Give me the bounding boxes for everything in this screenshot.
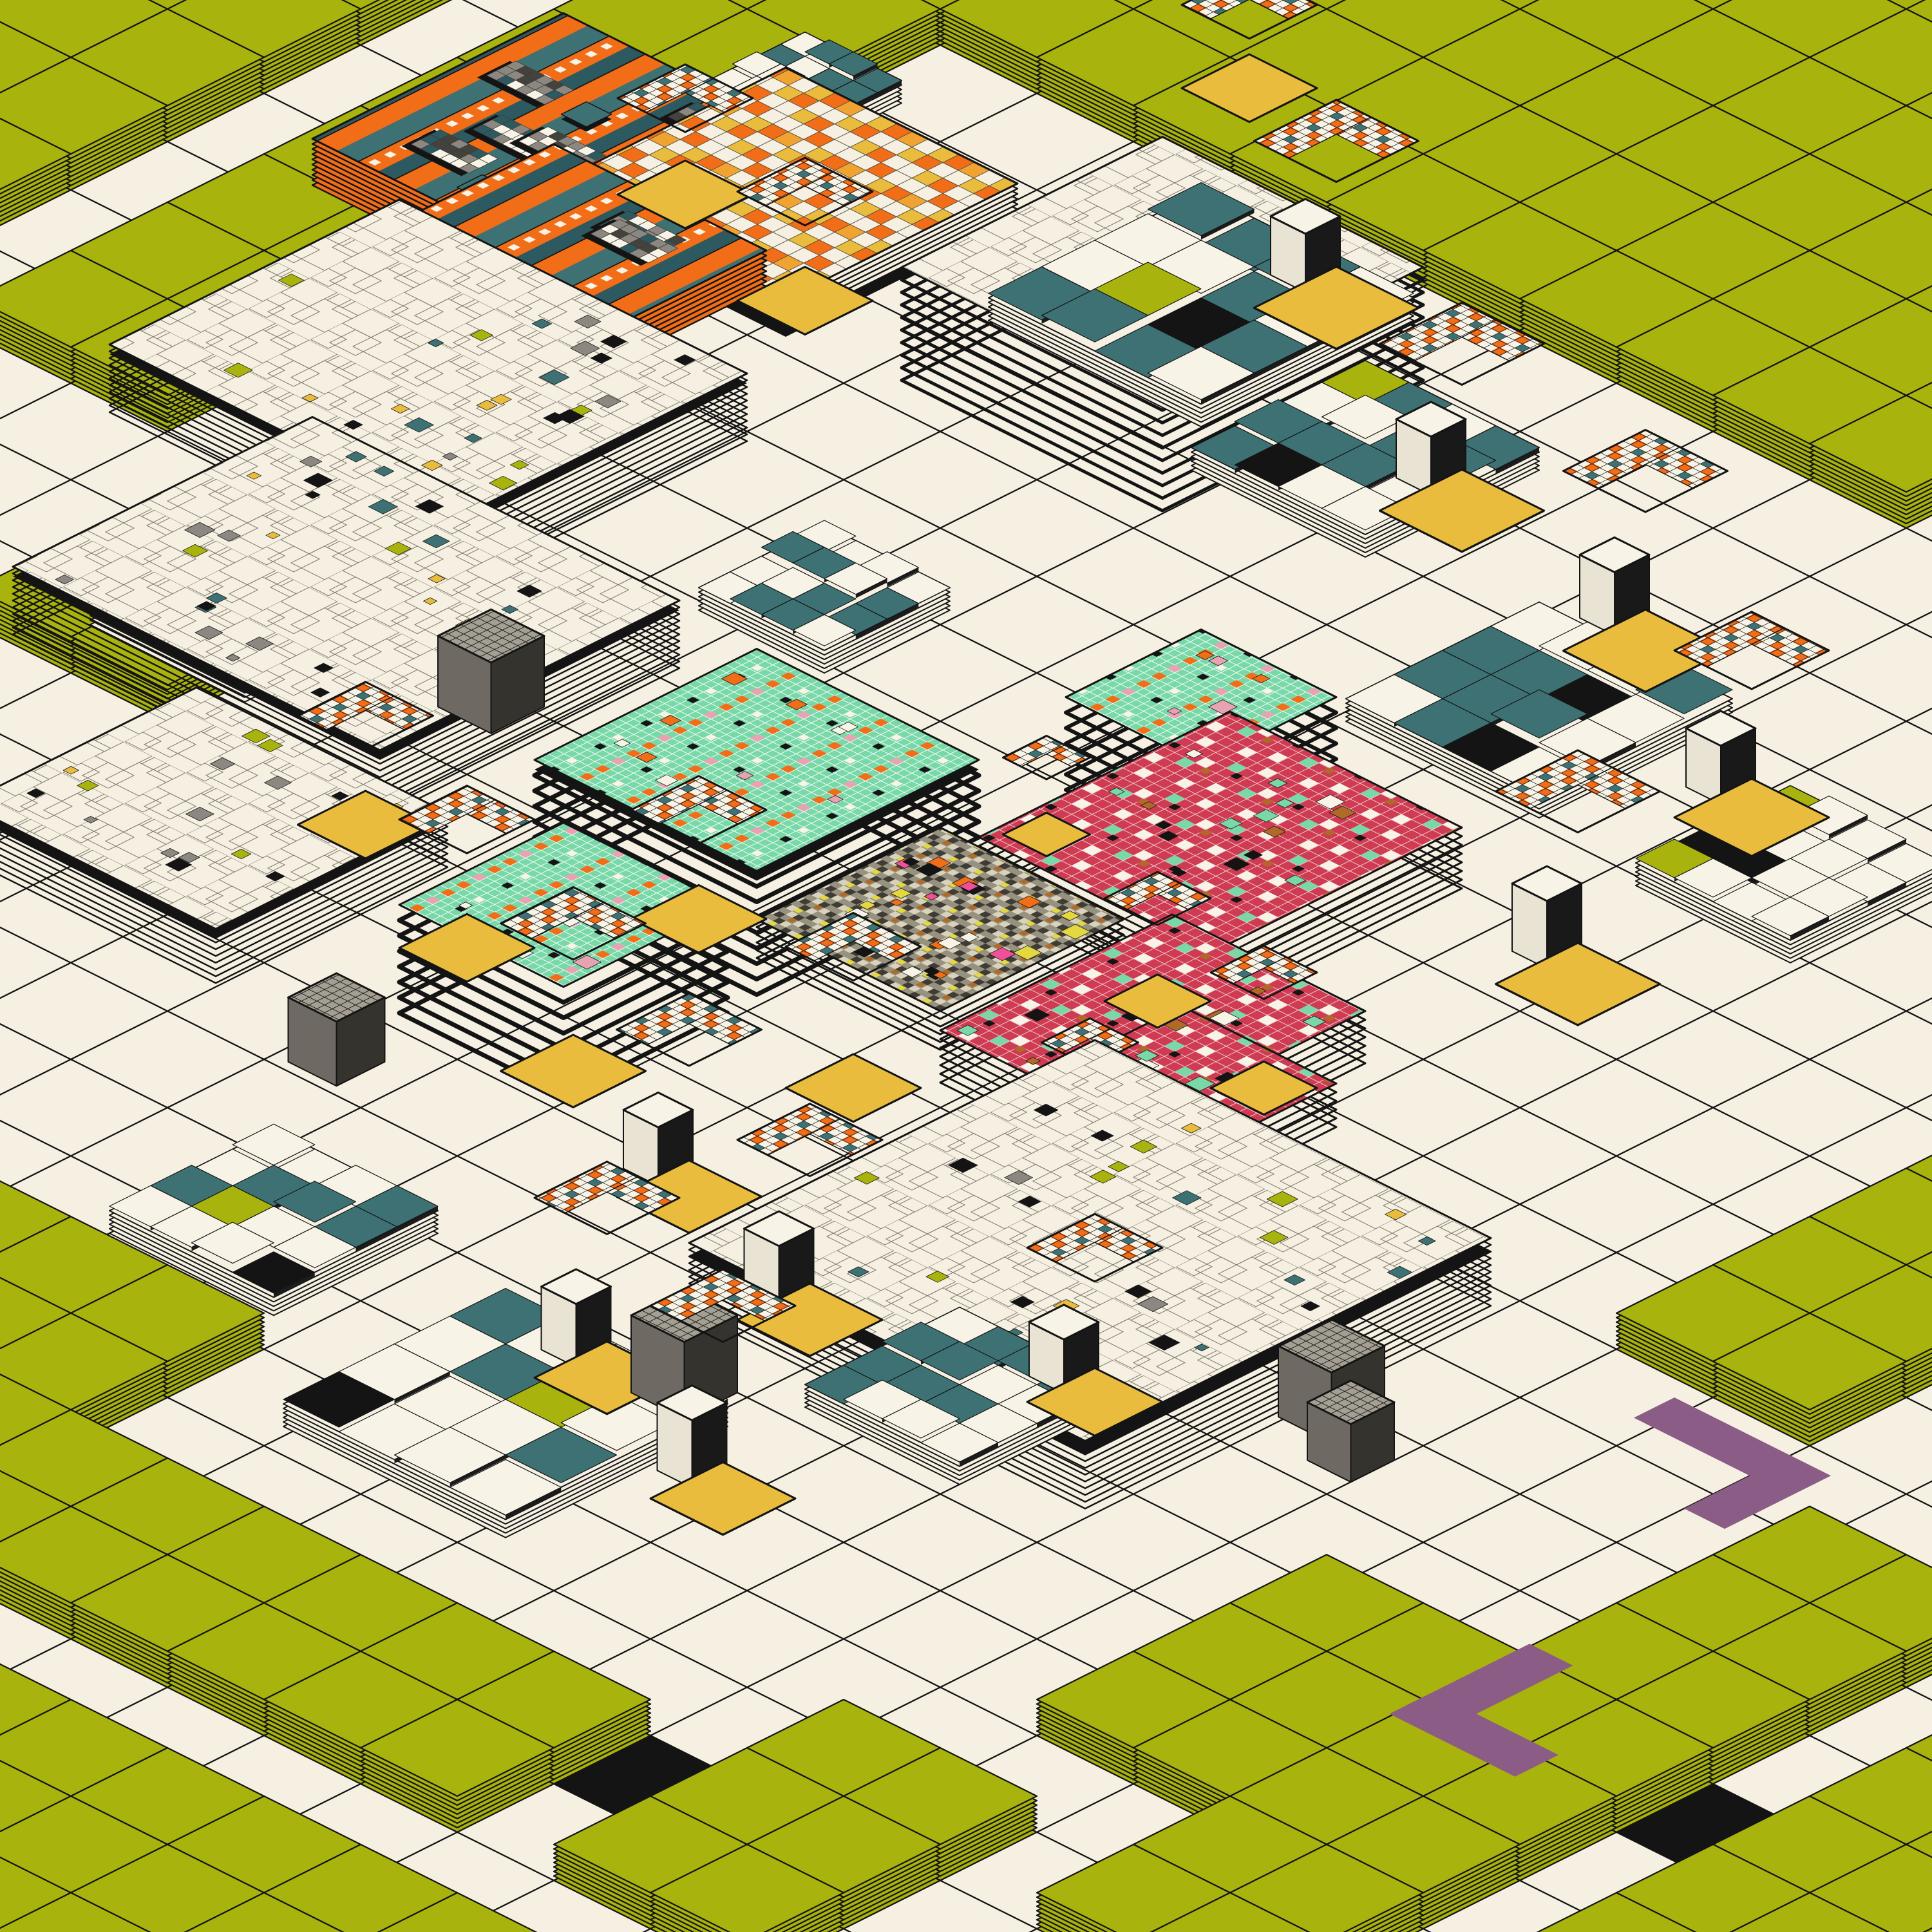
artwork-stage bbox=[0, 0, 1932, 1932]
gray-cube-building bbox=[289, 973, 385, 1086]
gray-cube-building bbox=[438, 609, 544, 734]
generative-isometric-city-canvas bbox=[0, 0, 1932, 1932]
gray-cube-building bbox=[1307, 1381, 1394, 1482]
